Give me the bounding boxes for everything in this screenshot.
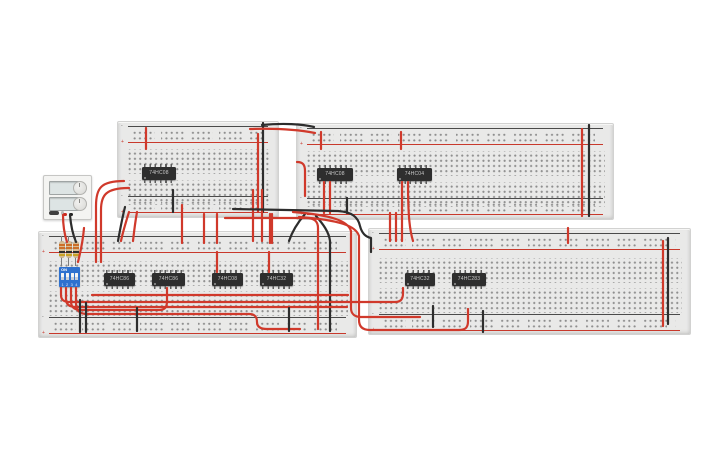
wire-black[interactable] [70, 215, 76, 242]
wire-red[interactable] [66, 288, 347, 307]
wire-red[interactable] [133, 212, 137, 241]
wire-red[interactable] [250, 129, 315, 133]
circuit-canvas: -+-+74HC08-+-+74HC0874HC04-+-+74HC8674HC… [0, 0, 725, 453]
wire-red[interactable] [299, 217, 468, 330]
wire-red[interactable] [78, 228, 84, 262]
wire-red[interactable] [297, 162, 305, 196]
wire-layer [0, 0, 725, 453]
wire-red[interactable] [63, 215, 67, 242]
wire-black[interactable] [262, 124, 314, 127]
wire-red[interactable] [408, 182, 413, 241]
